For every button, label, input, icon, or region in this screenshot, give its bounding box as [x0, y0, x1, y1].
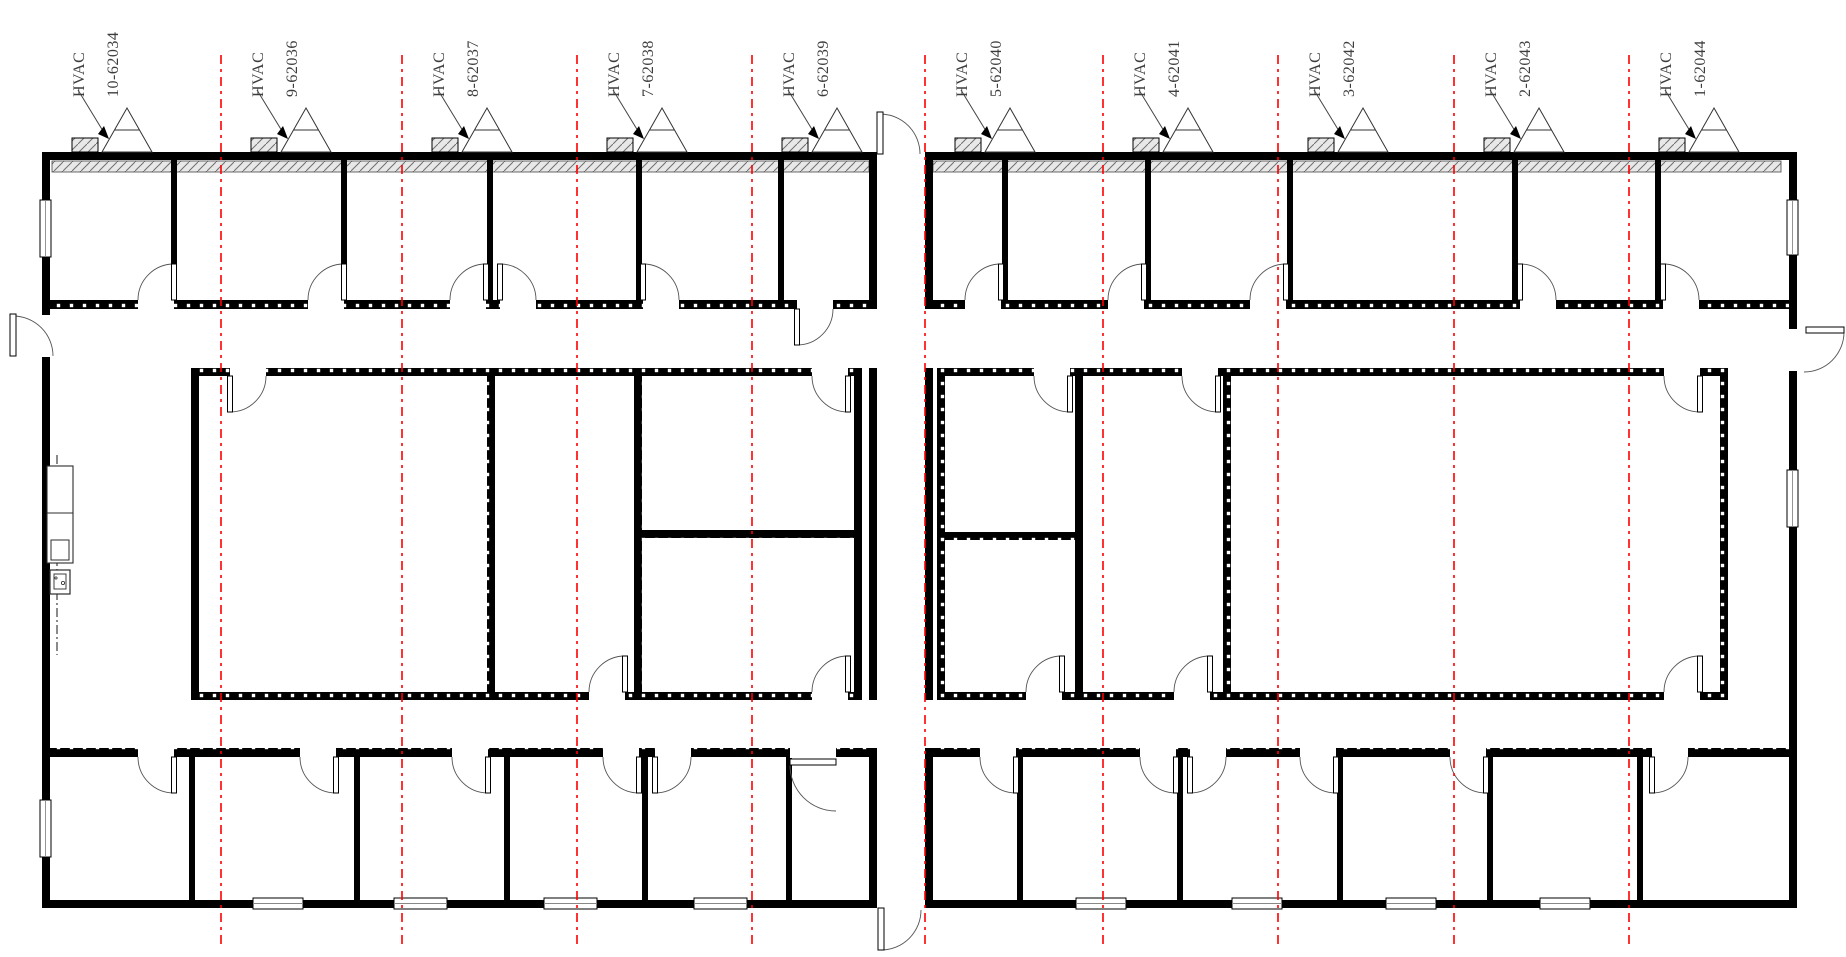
door — [498, 264, 537, 300]
door-leaf — [172, 264, 177, 300]
hvac-callouts: HVAC10-62034HVAC9-62036HVAC8-62037HVAC7-… — [71, 32, 1739, 152]
leader-arrowhead-icon — [1334, 126, 1345, 139]
door-swing-arc — [1034, 376, 1070, 412]
wall-opening — [500, 299, 536, 310]
hvac-unit-icon — [1484, 138, 1510, 152]
door-swing-arc — [1663, 264, 1699, 300]
door-swing-arc — [308, 264, 344, 300]
hvac-unit-callout: HVAC8-62037 — [431, 40, 512, 152]
wall — [925, 152, 933, 908]
door-leaf — [641, 264, 646, 300]
wall-opening — [924, 309, 934, 368]
hvac-unit-callout: HVAC7-62038 — [606, 40, 687, 152]
stud-wall — [642, 530, 854, 538]
door-leaf — [999, 264, 1004, 300]
door-swing-arc — [1190, 757, 1226, 793]
equipment-knob-icon — [55, 577, 57, 579]
hvac-label: HVAC — [431, 52, 448, 97]
wall — [925, 152, 1797, 160]
equipment-knob-icon — [61, 581, 64, 584]
door-leaf — [486, 757, 491, 793]
door-swing-arc — [1300, 757, 1336, 793]
hvac-label: HVAC — [1307, 52, 1324, 97]
utility-panel-fixture — [47, 455, 73, 655]
door-leaf — [1068, 376, 1073, 412]
floor-plan-canvas: HVAC10-62034HVAC9-62036HVAC8-62037HVAC7-… — [0, 0, 1846, 957]
hvac-unit-icon — [607, 138, 633, 152]
wall — [1637, 757, 1643, 900]
stud-wall — [945, 532, 1075, 540]
wall-opening — [1300, 747, 1336, 758]
door — [1182, 376, 1221, 412]
door-leaf — [342, 264, 347, 300]
hvac-unit-callout: HVAC10-62034 — [71, 32, 152, 152]
wall-opening — [589, 691, 625, 701]
door — [641, 264, 680, 300]
door-leaf — [623, 656, 628, 692]
door — [1188, 757, 1227, 793]
wall-opening — [603, 747, 639, 758]
door-leaf — [1661, 264, 1666, 300]
door-swing-arc — [300, 757, 336, 793]
hvac-label: HVAC — [606, 52, 623, 97]
door-leaf — [878, 908, 884, 950]
wall — [1789, 152, 1797, 908]
door-swing-arc — [138, 264, 174, 300]
door-swing-arc — [452, 757, 488, 793]
wall-opening — [965, 299, 1001, 310]
stud-wall — [191, 368, 199, 700]
wall-opening — [655, 747, 691, 758]
hvac-unit-callout: HVAC9-62036 — [250, 40, 331, 152]
insulation-hatch-strips — [52, 161, 1781, 172]
door-leaf — [1216, 376, 1221, 412]
wall-opening — [1026, 691, 1062, 701]
door — [1664, 376, 1703, 412]
door-leaf — [10, 314, 16, 356]
door-swing-arc — [1520, 264, 1556, 300]
wall — [504, 757, 510, 900]
door-swing-arc — [643, 264, 679, 300]
door — [1140, 757, 1179, 793]
stud-wall — [191, 368, 862, 376]
wall-opening — [1663, 299, 1699, 310]
stud-wall — [1223, 368, 1231, 700]
hvac-id-label: 9-62036 — [284, 40, 301, 97]
wall-opening — [1182, 367, 1218, 377]
door-swing-arc — [1652, 757, 1688, 793]
door-swing-arc — [1140, 757, 1176, 793]
door — [300, 757, 339, 793]
door-swing-arc — [230, 376, 266, 412]
hvac-unit-icon — [72, 138, 98, 152]
door — [1250, 264, 1289, 300]
leader-arrowhead-icon — [98, 126, 109, 139]
leader-arrowhead-icon — [981, 126, 992, 139]
door — [228, 376, 267, 412]
hvac-unit-callout: HVAC2-62043 — [1483, 40, 1564, 152]
wall — [869, 152, 877, 908]
hvac-unit-icon — [955, 138, 981, 152]
door-leaf — [1806, 327, 1844, 333]
wall-opening — [1520, 299, 1556, 310]
hvac-label: HVAC — [954, 52, 971, 97]
door-swing-arc — [812, 656, 848, 692]
door-swing-arc — [1664, 376, 1700, 412]
door-leaf — [1142, 264, 1147, 300]
door — [980, 757, 1019, 793]
hvac-label: HVAC — [250, 52, 267, 97]
door-swing-arc — [1450, 757, 1486, 793]
door — [603, 757, 642, 793]
leader-arrowhead-icon — [633, 126, 644, 139]
door-swing-arc — [138, 757, 174, 793]
door-swing-arc — [980, 757, 1016, 793]
wall-opening — [1664, 367, 1700, 377]
hvac-id-label: 3-62042 — [1341, 40, 1358, 97]
leader-arrowhead-icon — [1685, 126, 1696, 139]
hvac-unit-callout: HVAC1-62044 — [1658, 40, 1739, 152]
wall-opening — [138, 747, 174, 758]
door — [1664, 656, 1703, 692]
wall-opening — [1450, 747, 1486, 758]
door — [965, 264, 1004, 300]
wall-opening — [868, 700, 878, 748]
hvac-id-label: 6-62039 — [815, 40, 832, 97]
door — [1450, 757, 1489, 793]
door-leaf — [846, 376, 851, 412]
door — [1300, 757, 1339, 793]
hvac-unit-icon — [782, 138, 808, 152]
door — [653, 757, 692, 793]
wall-opening — [1788, 329, 1798, 371]
door-swing-arc — [589, 656, 625, 692]
door-leaf — [1060, 656, 1065, 692]
door-swing-arc — [965, 264, 1001, 300]
door — [138, 757, 177, 793]
hvac-unit-callout: HVAC5-62040 — [954, 40, 1035, 152]
door-leaf — [1698, 376, 1703, 412]
door-leaf — [637, 757, 642, 793]
hvac-unit-icon — [432, 138, 458, 152]
hatch-strip-right-building — [933, 161, 1781, 172]
hvac-unit-icon — [1659, 138, 1685, 152]
door — [812, 376, 851, 412]
wall — [189, 757, 195, 900]
door-leaf — [1484, 757, 1489, 793]
door-leaf — [1650, 757, 1655, 793]
stud-wall — [854, 368, 862, 700]
wall-opening — [1664, 691, 1700, 701]
door-swing-arc — [655, 757, 691, 793]
door-swing-arc — [1664, 656, 1700, 692]
hvac-id-label: 4-62041 — [1166, 40, 1183, 97]
panel-inner-box — [51, 540, 69, 560]
hvac-label: HVAC — [1658, 52, 1675, 97]
hvac-label: HVAC — [1132, 52, 1149, 97]
door-swing-arc — [500, 264, 536, 300]
door-leaf — [790, 759, 836, 765]
door-leaf — [653, 757, 658, 793]
match-lines — [221, 55, 1629, 945]
door — [795, 309, 834, 345]
plan-sheet: HVAC10-62034HVAC9-62036HVAC8-62037HVAC7-… — [0, 0, 1846, 957]
hvac-label: HVAC — [1483, 52, 1500, 97]
door — [308, 264, 347, 300]
wall-opening — [643, 299, 679, 310]
wall-openings — [41, 299, 1798, 758]
door-leaf — [846, 656, 851, 692]
door-leaf — [1014, 757, 1019, 793]
door — [450, 264, 489, 300]
wall-opening — [452, 747, 488, 758]
door — [1026, 656, 1065, 692]
door-leaf — [498, 264, 503, 300]
hvac-id-label: 10-62034 — [105, 32, 122, 97]
hvac-unit-callout: HVAC4-62041 — [1132, 40, 1213, 152]
door-leaf — [334, 757, 339, 793]
door-swing-arc — [1250, 264, 1286, 300]
door-swing-arc — [797, 309, 833, 345]
wall-opening — [980, 747, 1016, 758]
door-swing-arc — [790, 765, 836, 811]
wall-opening — [230, 367, 266, 377]
door-swing-arc — [1026, 656, 1062, 692]
hvac-id-label: 7-62038 — [640, 40, 657, 97]
stud-wall — [933, 300, 1789, 309]
stud-wall — [1720, 368, 1728, 700]
hvac-label: HVAC — [781, 52, 798, 97]
door-swing-arc — [880, 114, 920, 154]
door-leaf — [484, 264, 489, 300]
door-leaf — [228, 376, 233, 412]
hvac-unit-icon — [251, 138, 277, 152]
wall — [642, 757, 648, 900]
door-leaf — [1208, 656, 1213, 692]
leader-arrowhead-icon — [1159, 126, 1170, 139]
door — [589, 656, 628, 692]
wall-opening — [812, 691, 848, 701]
stud-wall — [634, 368, 642, 700]
wall-opening — [308, 299, 344, 310]
door-leaf — [1518, 264, 1523, 300]
stud-wall — [191, 692, 862, 700]
stud-wall — [1075, 368, 1083, 700]
door — [452, 757, 491, 793]
door-leaf — [1174, 757, 1179, 793]
wall-opening — [138, 299, 174, 310]
wall-opening — [41, 315, 51, 357]
wall-opening — [300, 747, 336, 758]
door-leaf — [172, 757, 177, 793]
leader-arrowhead-icon — [1510, 126, 1521, 139]
door — [1174, 656, 1213, 692]
wall-opening — [1140, 747, 1176, 758]
door — [812, 656, 851, 692]
door — [1108, 264, 1147, 300]
door-leaf — [1284, 264, 1289, 300]
hvac-unit-icon — [1308, 138, 1334, 152]
door-swing-arc — [881, 910, 921, 950]
hvac-unit-callout: HVAC3-62042 — [1307, 40, 1388, 152]
wall-opening — [1108, 299, 1144, 310]
door-leaf — [1698, 656, 1703, 692]
wall-opening — [1174, 691, 1210, 701]
wall-opening — [1250, 299, 1286, 310]
door-swing-arc — [1174, 656, 1210, 692]
door-leaf — [1188, 757, 1193, 793]
stud-wall — [937, 368, 945, 700]
door-swing-arc — [812, 376, 848, 412]
wall-opening — [868, 309, 878, 368]
hvac-unit-callout: HVAC6-62039 — [781, 40, 862, 152]
wall-opening — [812, 367, 848, 377]
hvac-unit-icon — [1133, 138, 1159, 152]
core-and-corridor-stud-walls — [50, 300, 1789, 757]
hvac-id-label: 8-62037 — [465, 40, 482, 97]
wall-opening — [1652, 747, 1688, 758]
hvac-id-label: 2-62043 — [1517, 40, 1534, 97]
door — [1518, 264, 1557, 300]
wall — [925, 900, 1797, 908]
wall-opening — [1190, 747, 1226, 758]
door-leaf — [1334, 757, 1339, 793]
door-swing-arc — [1804, 332, 1844, 372]
hvac-label: HVAC — [71, 52, 88, 97]
wall — [354, 757, 360, 900]
stud-wall — [487, 368, 495, 700]
leader-arrowhead-icon — [808, 126, 819, 139]
exterior-and-partition-walls — [42, 152, 1797, 908]
door — [1661, 264, 1700, 300]
door-swing-arc — [603, 757, 639, 793]
wall — [786, 757, 792, 900]
door-leaf — [877, 112, 883, 154]
hvac-id-label: 5-62040 — [988, 40, 1005, 97]
door-swing-arc — [450, 264, 486, 300]
door-leaf — [795, 309, 800, 345]
door — [1034, 376, 1073, 412]
door — [1650, 757, 1689, 793]
wall-opening — [1034, 367, 1070, 377]
wall-opening — [797, 299, 833, 310]
wall-opening — [450, 299, 486, 310]
wall — [778, 160, 784, 300]
leader-arrowhead-icon — [458, 126, 469, 139]
leader-arrowhead-icon — [277, 126, 288, 139]
wall-opening — [790, 747, 836, 758]
door — [138, 264, 177, 300]
hvac-id-label: 1-62044 — [1692, 40, 1709, 97]
door-swing-arc — [1108, 264, 1144, 300]
door-swing-arc — [1182, 376, 1218, 412]
